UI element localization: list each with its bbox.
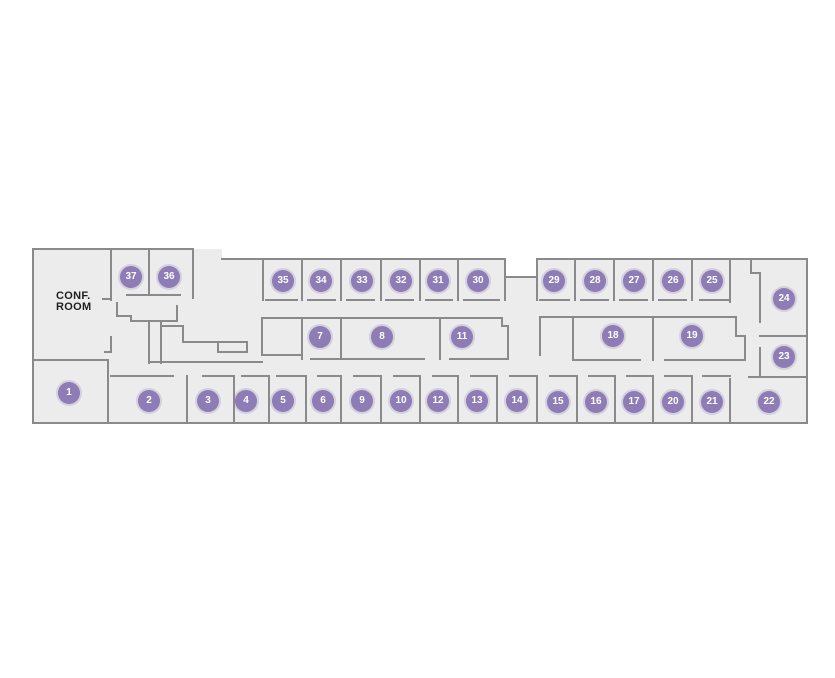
room-badge-29[interactable]: 29 xyxy=(543,270,565,292)
room-badge-30[interactable]: 30 xyxy=(467,270,489,292)
room-badge-2[interactable]: 2 xyxy=(138,390,160,412)
room-badge-34[interactable]: 34 xyxy=(310,270,332,292)
room-badge-31[interactable]: 31 xyxy=(427,270,449,292)
room-badge-12[interactable]: 12 xyxy=(427,390,449,412)
room-badge-6[interactable]: 6 xyxy=(312,390,334,412)
room-badge-27[interactable]: 27 xyxy=(623,270,645,292)
room-badge-18[interactable]: 18 xyxy=(602,325,624,347)
room-badge-7[interactable]: 7 xyxy=(309,326,331,348)
room-badge-3[interactable]: 3 xyxy=(197,390,219,412)
room-badge-14[interactable]: 14 xyxy=(506,390,528,412)
room-badge-25[interactable]: 25 xyxy=(701,270,723,292)
room-badge-28[interactable]: 28 xyxy=(584,270,606,292)
room-badge-32[interactable]: 32 xyxy=(390,270,412,292)
room-badge-33[interactable]: 33 xyxy=(351,270,373,292)
room-badge-10[interactable]: 10 xyxy=(390,390,412,412)
room-badge-26[interactable]: 26 xyxy=(662,270,684,292)
room-badge-11[interactable]: 11 xyxy=(451,326,473,348)
room-badge-35[interactable]: 35 xyxy=(272,270,294,292)
room-badge-13[interactable]: 13 xyxy=(466,390,488,412)
room-badge-37[interactable]: 37 xyxy=(120,266,142,288)
room-badge-5[interactable]: 5 xyxy=(272,390,294,412)
room-badge-9[interactable]: 9 xyxy=(351,390,373,412)
room-badge-16[interactable]: 16 xyxy=(585,391,607,413)
conf-room-label: CONF. ROOM xyxy=(56,291,112,312)
floor-plan-page: CONF. ROOM 1 2 3 4 5 6 7 8 9 10 11 12 13… xyxy=(0,0,835,678)
room-badge-17[interactable]: 17 xyxy=(623,391,645,413)
floor-plan-drawing xyxy=(0,0,835,678)
room-badge-23[interactable]: 23 xyxy=(773,346,795,368)
room-badge-20[interactable]: 20 xyxy=(662,391,684,413)
room-badge-8[interactable]: 8 xyxy=(371,326,393,348)
room-badge-1[interactable]: 1 xyxy=(58,382,80,404)
room-badge-22[interactable]: 22 xyxy=(758,391,780,413)
room-badge-24[interactable]: 24 xyxy=(773,288,795,310)
room-badge-21[interactable]: 21 xyxy=(701,391,723,413)
room-badge-4[interactable]: 4 xyxy=(235,390,257,412)
room-badge-36[interactable]: 36 xyxy=(158,266,180,288)
room-badge-19[interactable]: 19 xyxy=(681,325,703,347)
room-badge-15[interactable]: 15 xyxy=(547,391,569,413)
